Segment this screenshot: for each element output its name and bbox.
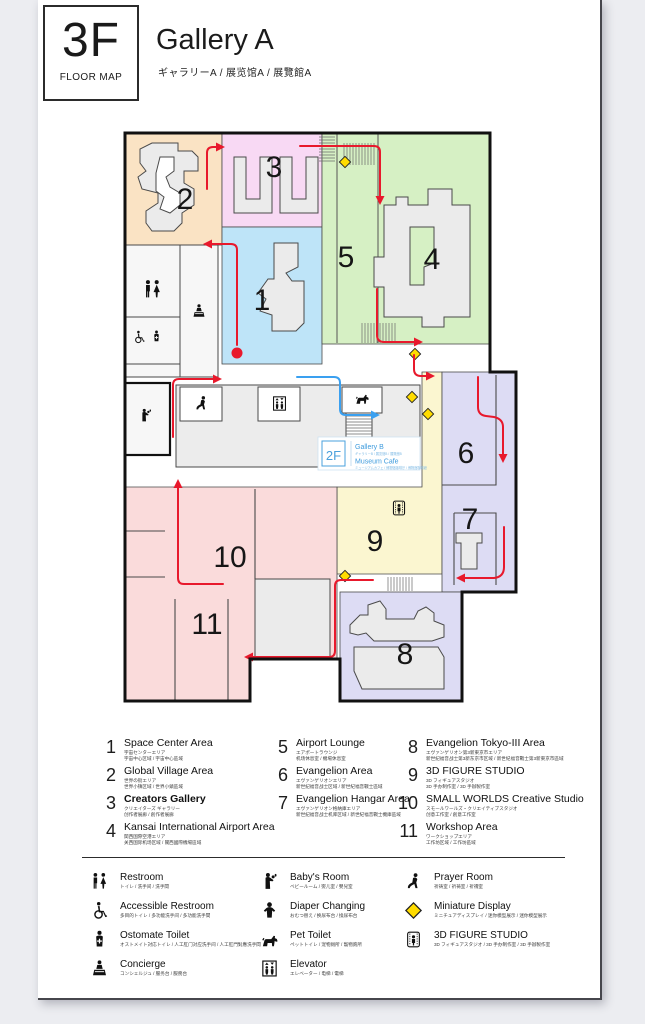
floor-badge: 3F FLOOR MAP xyxy=(43,5,139,101)
facility-name: Diaper Changing xyxy=(290,901,365,913)
facility-name: Miniature Display xyxy=(434,901,547,913)
facility-legend-item: Elevator エレベーター / 电梯 / 電梯 xyxy=(260,959,365,988)
facility-legend-col2: Baby's Room ベビールーム / 婴儿室 / 嬰兒室 Diaper Ch… xyxy=(260,872,365,988)
area-name: Space Center Area xyxy=(124,738,213,750)
area-sub-zh: 创意工作室 / 創意工作室 xyxy=(426,812,584,819)
area-sub-zh: 新世纪福音战士区域 / 新世紀福音戰士區域 xyxy=(296,784,383,791)
facility-legend-col3: Prayer Room 祈祷室 / 祈祷室 / 祈禱室 Miniature Di… xyxy=(404,872,550,959)
area-number: 7 xyxy=(266,794,288,812)
facility-legend-item: Diaper Changing おむつ替え / 换尿布台 / 換尿布台 xyxy=(260,901,365,930)
facility-legend-col1: Restroom トイレ / 洗手间 / 洗手間 Accessible Rest… xyxy=(90,872,261,988)
concierge-icon xyxy=(90,959,109,978)
facility-legend-item: Accessible Restroom 多目的トイレ / 多功能洗手间 / 多功… xyxy=(90,901,261,930)
area-number: 1 xyxy=(94,738,116,756)
area-sub-zh: 3D 手办制作室 / 3D 手辦製作室 xyxy=(426,784,525,791)
area-number: 2 xyxy=(94,766,116,784)
facility-sub: ミニチュアディスプレイ / 迷你模型展示 / 迷你模型展示 xyxy=(434,913,547,920)
area-legend-item: 9 3D FIGURE STUDIO 3D フィギュアスタジオ 3D 手办制作室… xyxy=(396,766,584,794)
facility-sub: 3D フィギュアスタジオ / 3D 手办制作室 / 3D 手辦製作室 xyxy=(434,942,550,949)
facility-legend-item: Restroom トイレ / 洗手间 / 洗手間 xyxy=(90,872,261,901)
facility-sub: オストメイト対応トイレ / 人工肛门对应洗手间 / 人工肛門對應洗手間 xyxy=(120,942,261,949)
area-sub-zh: 机场休息室 / 機場休息室 xyxy=(296,756,365,763)
facility-name: Accessible Restroom xyxy=(120,901,214,913)
facility-legend-item: Pet Toilet ペットトイレ / 宠物厕所 / 寵物廁所 xyxy=(260,930,365,959)
map-label-area4: 4 xyxy=(424,243,441,276)
map-label-area3: 3 xyxy=(266,151,283,184)
area-sub-zh: 工作坊区域 / 工作坊區域 xyxy=(426,840,498,847)
facility-name: Pet Toilet xyxy=(290,930,362,942)
sign-gallery-b: Gallery B xyxy=(355,444,384,451)
facility-name: Prayer Room xyxy=(434,872,493,884)
map-label-area9: 9 xyxy=(367,525,384,558)
facility-name: Restroom xyxy=(120,872,169,884)
area-sub-zh: 宇宙中心区域 / 宇宙中心區域 xyxy=(124,756,213,763)
page-title: Gallery A xyxy=(156,24,274,57)
restroom-block xyxy=(125,245,218,377)
area-legend-col3: 8 Evangelion Tokyo-III Area エヴァンゲリオン第3新東… xyxy=(396,738,584,850)
area-legend-item: 7 Evangelion Hangar Area エヴァンゲリオン格納庫エリア … xyxy=(266,794,410,822)
babys-room-icon xyxy=(260,872,279,891)
floor-number: 3F xyxy=(45,17,137,65)
map-label-area2: 2 xyxy=(177,183,194,216)
area-legend-item: 4 Kansai International Airport Area 関西国際… xyxy=(94,822,275,850)
facility-sub: 祈祷室 / 祈祷室 / 祈禱室 xyxy=(434,884,493,891)
floor-caption: FLOOR MAP xyxy=(45,72,137,83)
area-legend-item: 10 SMALL WORLDS Creative Studio スモールワールズ… xyxy=(396,794,584,822)
facility-legend-item: Prayer Room 祈祷室 / 祈祷室 / 祈禱室 xyxy=(404,872,550,901)
area-sub-zh: 关西国际机场区域 / 關西國際機場區域 xyxy=(124,840,275,847)
facility-sub: ベビールーム / 婴儿室 / 嬰兒室 xyxy=(290,884,353,891)
sign-museum-cafe-sub: ミュージアムカフェ / 博物馆咖啡厅 / 博物館咖啡廳 xyxy=(355,465,428,470)
legend-divider xyxy=(82,857,565,858)
stairs-destination-sign: 2F Gallery B ギャラリーB / 展览馆B / 展覽館B Museum… xyxy=(318,437,428,470)
facility-legend-item: 3D FIGURE STUDIO 3D フィギュアスタジオ / 3D 手办制作室… xyxy=(404,930,550,959)
floor-map: 2F Gallery B ギャラリーB / 展览馆B / 展覽館B Museum… xyxy=(122,126,520,708)
area-name: Evangelion Area xyxy=(296,766,383,778)
prayer-room-icon xyxy=(404,872,423,891)
area-number: 4 xyxy=(94,822,116,840)
area-number: 10 xyxy=(396,794,418,812)
area-number: 9 xyxy=(396,766,418,784)
area-legend-col1: 1 Space Center Area 宇宙センターエリア 宇宙中心区域 / 宇… xyxy=(94,738,275,850)
area-name: Evangelion Hangar Area xyxy=(296,794,410,806)
area-sub-zh: 世界小镇区域 / 世界小鎮區域 xyxy=(124,784,213,791)
facility-name: Ostomate Toilet xyxy=(120,930,261,942)
figure-studio-icon xyxy=(404,930,423,949)
facility-legend-item: Miniature Display ミニチュアディスプレイ / 迷你模型展示 /… xyxy=(404,901,550,930)
facility-sub: おむつ替え / 换尿布台 / 換尿布台 xyxy=(290,913,365,920)
area-legend-item: 8 Evangelion Tokyo-III Area エヴァンゲリオン第3新東… xyxy=(396,738,584,766)
ostomate-toilet-icon xyxy=(90,930,109,949)
facility-sub: 多目的トイレ / 多功能洗手间 / 多功能洗手間 xyxy=(120,913,214,920)
facility-legend-item: Ostomate Toilet オストメイト対応トイレ / 人工肛门对应洗手间 … xyxy=(90,930,261,959)
area-sub-zh: 新世纪福音战士机库区域 / 新世紀福音戰士機庫區域 xyxy=(296,812,410,819)
facility-sub: コンシェルジュ / 服务台 / 服務台 xyxy=(120,971,187,978)
area-number: 5 xyxy=(266,738,288,756)
elevator-room xyxy=(258,387,300,421)
sign-museum-cafe: Museum Cafe xyxy=(355,459,399,466)
area-number: 3 xyxy=(94,794,116,812)
elevator-icon xyxy=(260,959,279,978)
restroom-icon xyxy=(90,872,109,891)
area-name: 3D FIGURE STUDIO xyxy=(426,766,525,778)
area-number: 11 xyxy=(396,822,418,840)
facility-legend-item: Concierge コンシェルジュ / 服务台 / 服務台 xyxy=(90,959,261,988)
area-sub-zh: 创作者展廊 / 創作者展廊 xyxy=(124,812,206,819)
sign-gallery-b-sub: ギャラリーB / 展览馆B / 展覽館B xyxy=(355,451,402,456)
map-label-area6: 6 xyxy=(458,437,475,470)
area-legend-item: 6 Evangelion Area エヴァンゲリオンエリア 新世纪福音战士区域 … xyxy=(266,766,410,794)
area-name: Evangelion Tokyo-III Area xyxy=(426,738,564,750)
area-name: Kansai International Airport Area xyxy=(124,822,275,834)
baby-room xyxy=(125,383,170,455)
area-sub-zh: 新世纪福音战士第3新东京市区域 / 新世紀福音戰士第3新東京市區域 xyxy=(426,756,564,763)
miniature-display-icon xyxy=(404,901,423,920)
diaper-changing-icon xyxy=(260,901,279,920)
accessible-restroom-icon xyxy=(90,901,109,920)
area-name: SMALL WORLDS Creative Studio xyxy=(426,794,584,806)
facility-sub: ペットトイレ / 宠物厕所 / 寵物廁所 xyxy=(290,942,362,949)
area-legend-item: 5 Airport Lounge エアポートラウンジ 机场休息室 / 機場休息室 xyxy=(266,738,410,766)
map-label-area11: 11 xyxy=(191,608,222,641)
area-name: Workshop Area xyxy=(426,822,498,834)
area-legend-item: 11 Workshop Area ワークショップエリア 工作坊区域 / 工作坊區… xyxy=(396,822,584,850)
facility-legend-item: Baby's Room ベビールーム / 婴儿室 / 嬰兒室 xyxy=(260,872,365,901)
current-location-dot xyxy=(232,348,243,359)
area-name: Airport Lounge xyxy=(296,738,365,750)
area-name: Global Village Area xyxy=(124,766,213,778)
map-label-area7: 7 xyxy=(462,503,479,536)
area-name: Creators Gallery xyxy=(124,794,206,806)
map-label-area5: 5 xyxy=(338,241,355,274)
map-label-area10: 10 xyxy=(213,541,246,574)
structure-square-room xyxy=(255,579,330,659)
facility-name: Baby's Room xyxy=(290,872,353,884)
area-legend-item: 3 Creators Gallery クリエイターズ ギャラリー 创作者展廊 /… xyxy=(94,794,275,822)
area-number: 8 xyxy=(396,738,418,756)
sign-floor: 2F xyxy=(326,448,341,463)
floor-map-page: 3F FLOOR MAP Gallery A ギャラリーA / 展览馆A / 展… xyxy=(38,0,602,1000)
facility-name: Elevator xyxy=(290,959,344,971)
area-legend-col2: 5 Airport Lounge エアポートラウンジ 机场休息室 / 機場休息室… xyxy=(266,738,410,822)
facility-sub: トイレ / 洗手间 / 洗手間 xyxy=(120,884,169,891)
map-label-area8: 8 xyxy=(397,638,414,671)
area-legend-item: 1 Space Center Area 宇宙センターエリア 宇宙中心区域 / 宇… xyxy=(94,738,275,766)
facility-name: 3D FIGURE STUDIO xyxy=(434,930,550,942)
stairs-steps xyxy=(346,416,372,434)
area-legend-item: 2 Global Village Area 世界の街エリア 世界小镇区域 / 世… xyxy=(94,766,275,794)
facility-sub: エレベーター / 电梯 / 電梯 xyxy=(290,971,344,978)
page-subtitle: ギャラリーA / 展览馆A / 展覽館A xyxy=(158,64,312,79)
area-number: 6 xyxy=(266,766,288,784)
map-label-area1: 1 xyxy=(254,284,271,317)
pet-toilet-icon xyxy=(260,930,279,949)
facility-name: Concierge xyxy=(120,959,187,971)
